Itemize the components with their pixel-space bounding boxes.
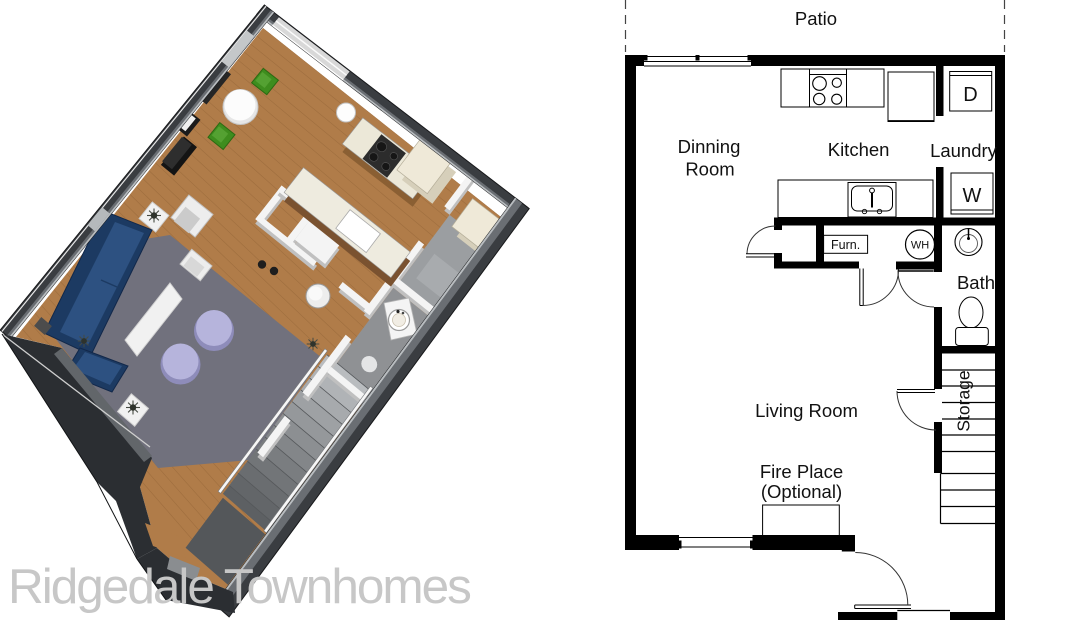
svg-text:Fire Place: Fire Place bbox=[760, 461, 843, 482]
svg-text:Room: Room bbox=[685, 159, 734, 180]
svg-text:Furn.: Furn. bbox=[831, 238, 860, 252]
svg-text:Patio: Patio bbox=[795, 8, 837, 29]
svg-text:D: D bbox=[963, 84, 977, 106]
svg-text:(Optional): (Optional) bbox=[761, 481, 842, 502]
svg-text:W: W bbox=[963, 185, 982, 207]
svg-text:Laundry: Laundry bbox=[930, 140, 998, 161]
svg-text:Living Room: Living Room bbox=[755, 400, 858, 421]
svg-text:Dinning: Dinning bbox=[678, 136, 741, 157]
svg-text:Storage: Storage bbox=[954, 370, 974, 431]
svg-text:Bath: Bath bbox=[957, 272, 995, 293]
svg-text:Ridgedale Townhomes: Ridgedale Townhomes bbox=[8, 559, 470, 614]
svg-text:WH: WH bbox=[911, 240, 929, 252]
svg-text:Kitchen: Kitchen bbox=[828, 139, 890, 160]
